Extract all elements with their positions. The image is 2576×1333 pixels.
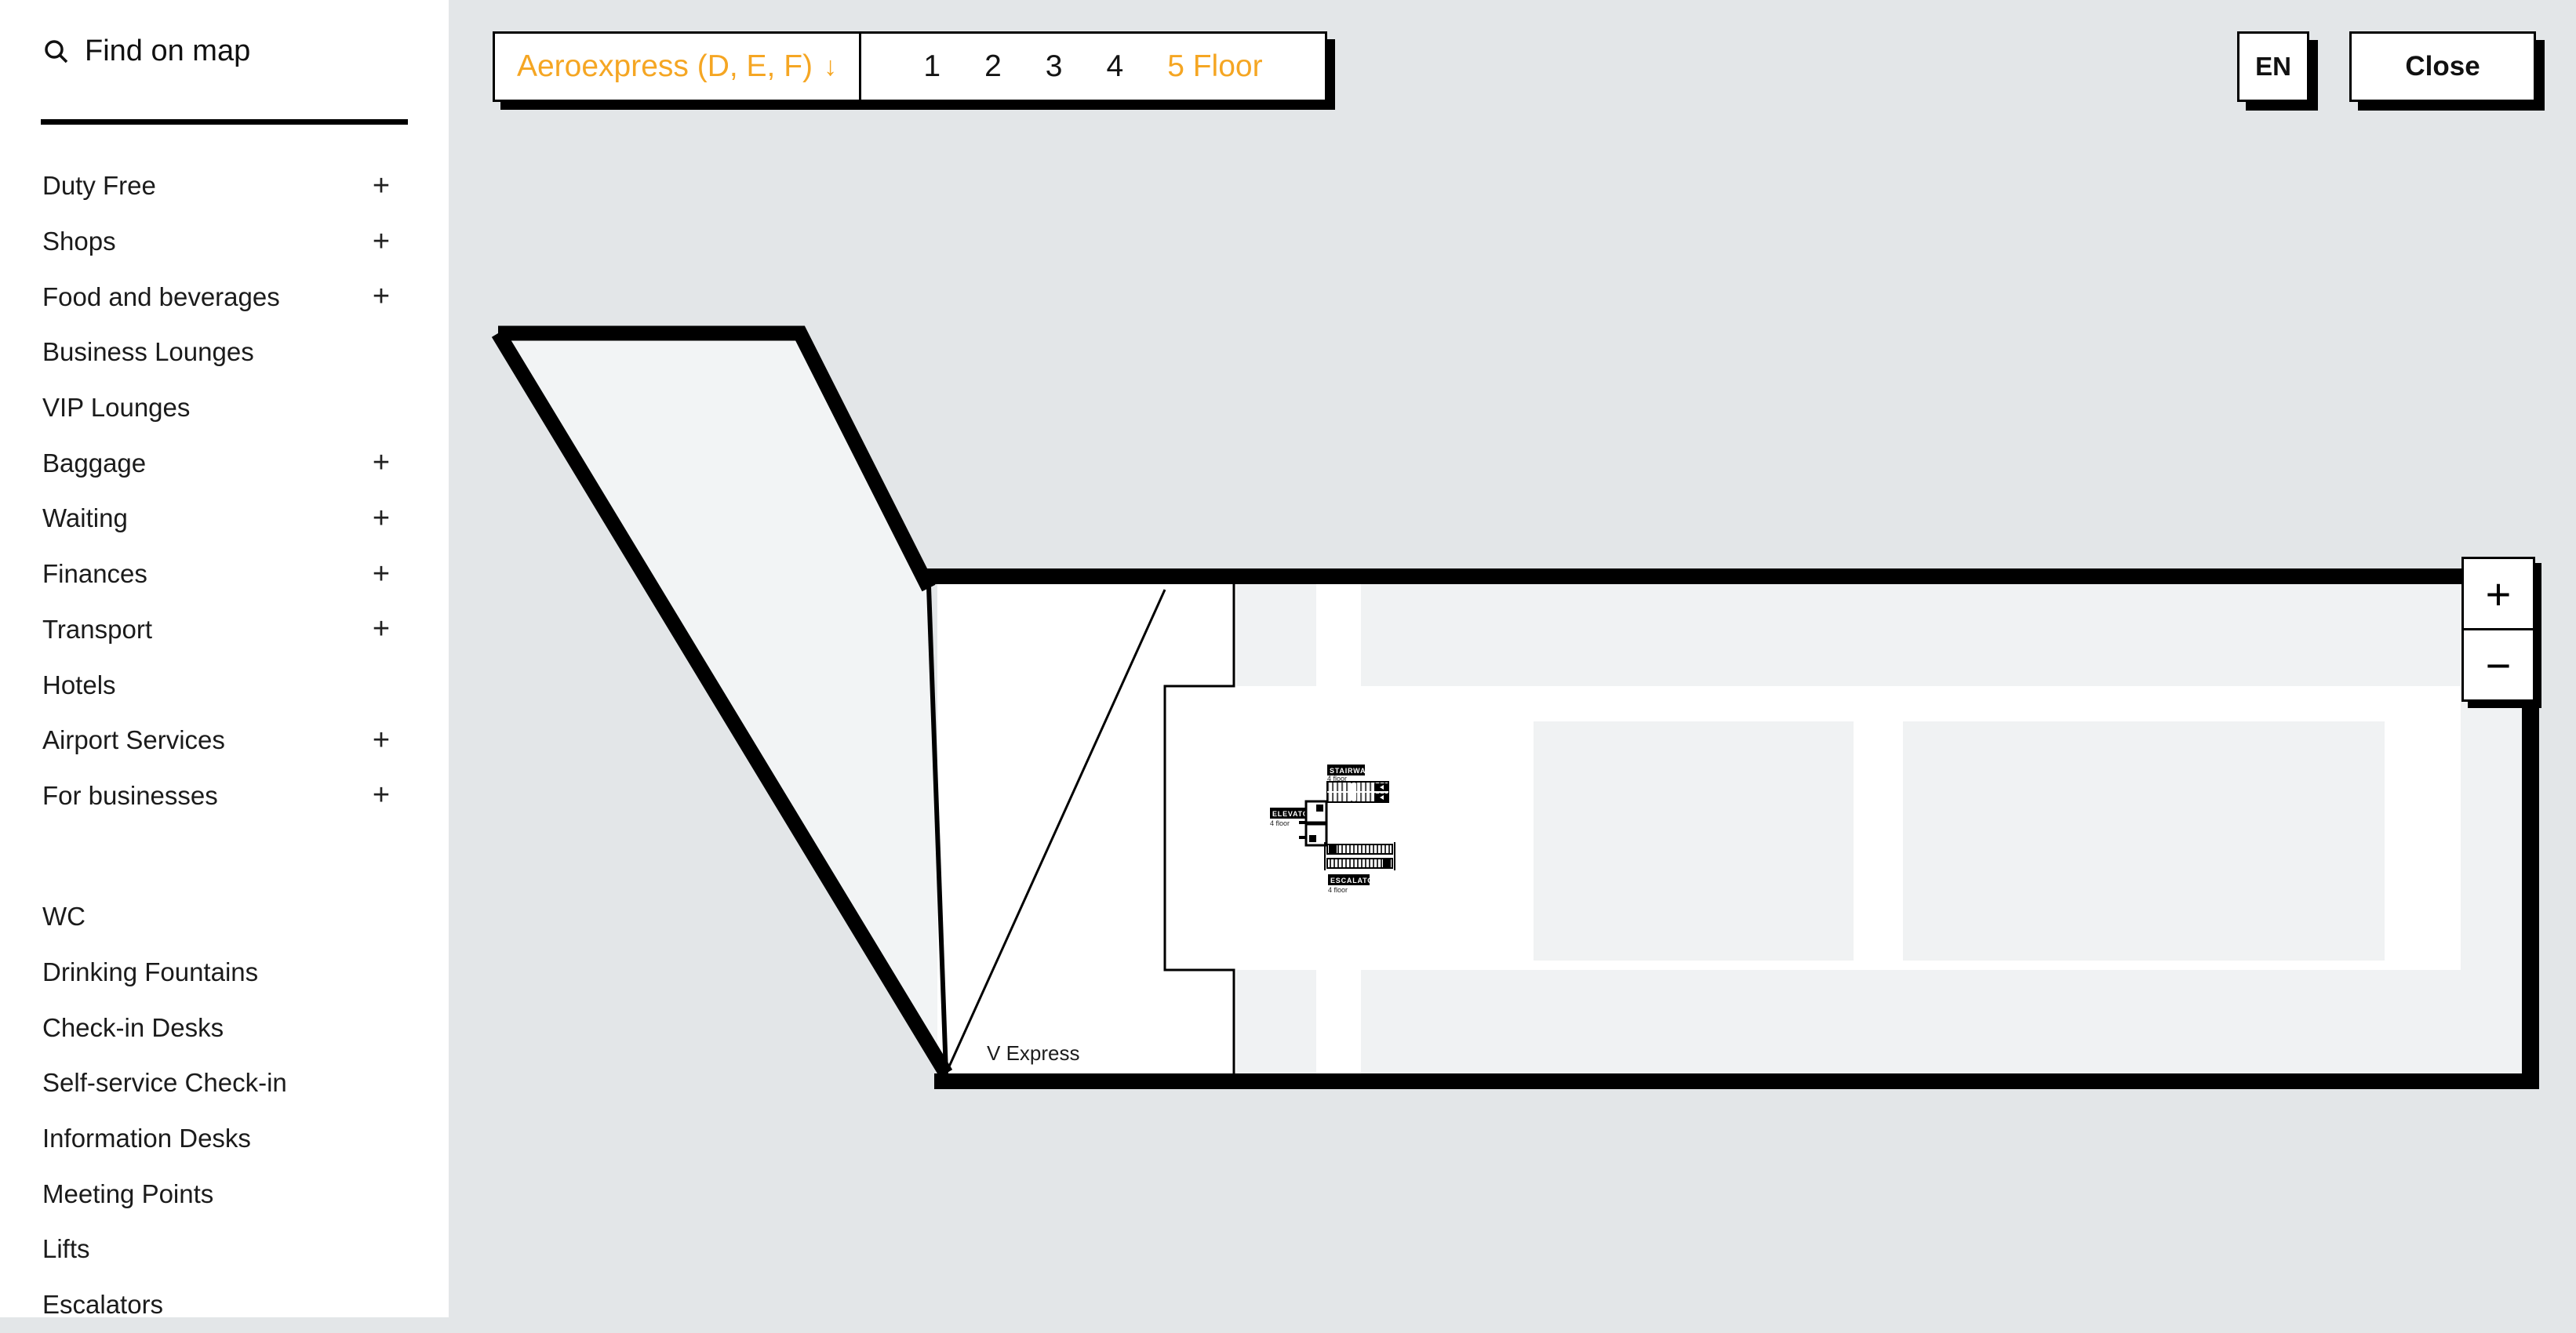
zone-central-1 [1534,721,1854,961]
sidebar-item-business-lounges[interactable]: Business Lounges [42,325,397,380]
sidebar-item-airport-services[interactable]: Airport Services+ [42,713,397,768]
sidebar-item-label: Drinking Fountains [42,957,258,987]
plus-icon[interactable]: + [366,558,397,591]
sidebar-item-meeting-points[interactable]: Meeting Points [42,1166,397,1222]
sidebar-item-lifts[interactable]: Lifts [42,1222,397,1277]
plus-icon[interactable]: + [366,612,397,646]
terminal-selector[interactable]: Aeroexpress (D, E, F) ↓ [495,34,859,100]
map-controls-bar: Aeroexpress (D, E, F) ↓ 1 2 3 4 5 Floor [493,31,1327,102]
floor-tab-2[interactable]: 2 [981,49,1005,84]
sidebar-item-wc[interactable]: WC [42,889,397,945]
sidebar-item-label: Duty Free [42,171,156,201]
plus-icon[interactable]: + [366,502,397,536]
plus-icon[interactable]: + [366,280,397,314]
sidebar-menu-facilities: WC Drinking Fountains Check-in Desks Sel… [42,889,397,1333]
sidebar-item-label: VIP Lounges [42,393,190,423]
escalator-label: ESCALATOR [1330,877,1379,884]
plus-icon[interactable]: + [366,225,397,259]
plus-icon[interactable]: + [366,169,397,203]
sidebar-item-finances[interactable]: Finances+ [42,547,397,602]
sidebar-item-drinking-fountains[interactable]: Drinking Fountains [42,945,397,1001]
zone-central-2 [1903,721,2385,961]
elevator-floor-label: 4 floor [1270,819,1290,827]
sidebar-item-label: Check-in Desks [42,1013,224,1043]
sidebar-item-label: Airport Services [42,725,225,755]
sidebar-item-hotels[interactable]: Hotels [42,657,397,713]
sidebar-item-label: Finances [42,559,147,589]
zone-top-band [1361,583,2522,686]
zone-bottom-left-strip [1236,970,1316,1073]
search-icon [42,38,71,66]
sidebar: Find on map Duty Free+ Shops+ Food and b… [0,0,449,1317]
outline-top-edge [922,568,2539,584]
sidebar-item-shops[interactable]: Shops+ [42,214,397,270]
zoom-in-button[interactable]: + [2461,557,2535,630]
sidebar-item-self-service-check-in[interactable]: Self-service Check-in [42,1055,397,1111]
plus-icon[interactable]: + [366,779,397,812]
sidebar-item-label: Self-service Check-in [42,1068,287,1098]
sidebar-item-duty-free[interactable]: Duty Free+ [42,158,397,214]
plus-icon[interactable]: + [366,446,397,480]
sidebar-item-label: Shops [42,227,116,256]
sidebar-item-check-in-desks[interactable]: Check-in Desks [42,1000,397,1055]
escalator-floor-label: 4 floor [1328,886,1348,894]
sidebar-item-label: Information Desks [42,1124,251,1153]
sidebar-item-waiting[interactable]: Waiting+ [42,491,397,547]
stairway-icon [1327,782,1388,802]
zone-top-left-strip [1236,583,1316,686]
floor-selector: 1 2 3 4 5 Floor [859,34,1325,100]
floor-tab-4[interactable]: 4 [1104,49,1127,84]
language-button[interactable]: EN [2237,31,2309,102]
plus-icon[interactable]: + [366,724,397,757]
zoom-controls: + − [2461,557,2535,702]
close-button[interactable]: Close [2349,31,2536,102]
floor-tab-5-active[interactable]: 5 Floor [1164,49,1265,84]
floor-tab-3[interactable]: 3 [1042,49,1066,84]
sidebar-item-food-and-beverages[interactable]: Food and beverages+ [42,269,397,325]
sidebar-item-label: Business Lounges [42,337,254,367]
dropdown-arrow-icon: ↓ [824,52,837,82]
zoom-out-button[interactable]: − [2461,628,2535,702]
sidebar-item-label: Transport [42,615,152,645]
sidebar-item-label: Hotels [42,670,116,700]
sidebar-item-escalators[interactable]: Escalators [42,1277,397,1333]
elevator-icon [1299,801,1326,845]
sidebar-menu-categories: Duty Free+ Shops+ Food and beverages+ Bu… [42,158,397,823]
sidebar-item-transport[interactable]: Transport+ [42,602,397,658]
v-express-label: V Express [987,1041,1080,1065]
sidebar-item-baggage[interactable]: Baggage+ [42,435,397,491]
sidebar-item-label: Waiting [42,503,128,533]
sidebar-item-label: Escalators [42,1290,163,1320]
find-on-map-search[interactable]: Find on map [42,35,250,68]
sidebar-item-label: Baggage [42,449,146,478]
sidebar-item-label: Food and beverages [42,282,280,312]
sidebar-divider [41,119,408,125]
sidebar-item-label: Lifts [42,1234,90,1264]
find-on-map-label: Find on map [85,35,250,68]
sidebar-item-label: Meeting Points [42,1179,213,1209]
sidebar-item-information-desks[interactable]: Information Desks [42,1111,397,1167]
sidebar-item-vip-lounges[interactable]: VIP Lounges [42,380,397,436]
terminal-selector-label: Aeroexpress (D, E, F) [517,49,813,84]
stairway-label: STAIRWAY [1330,767,1370,775]
sidebar-item-label: WC [42,902,86,932]
zone-bottom-band [1361,970,2522,1073]
sidebar-item-label: For businesses [42,781,218,811]
outline-bottom-edge [934,1073,2539,1089]
floor-tab-1[interactable]: 1 [920,49,944,84]
sidebar-item-for-businesses[interactable]: For businesses+ [42,768,397,824]
